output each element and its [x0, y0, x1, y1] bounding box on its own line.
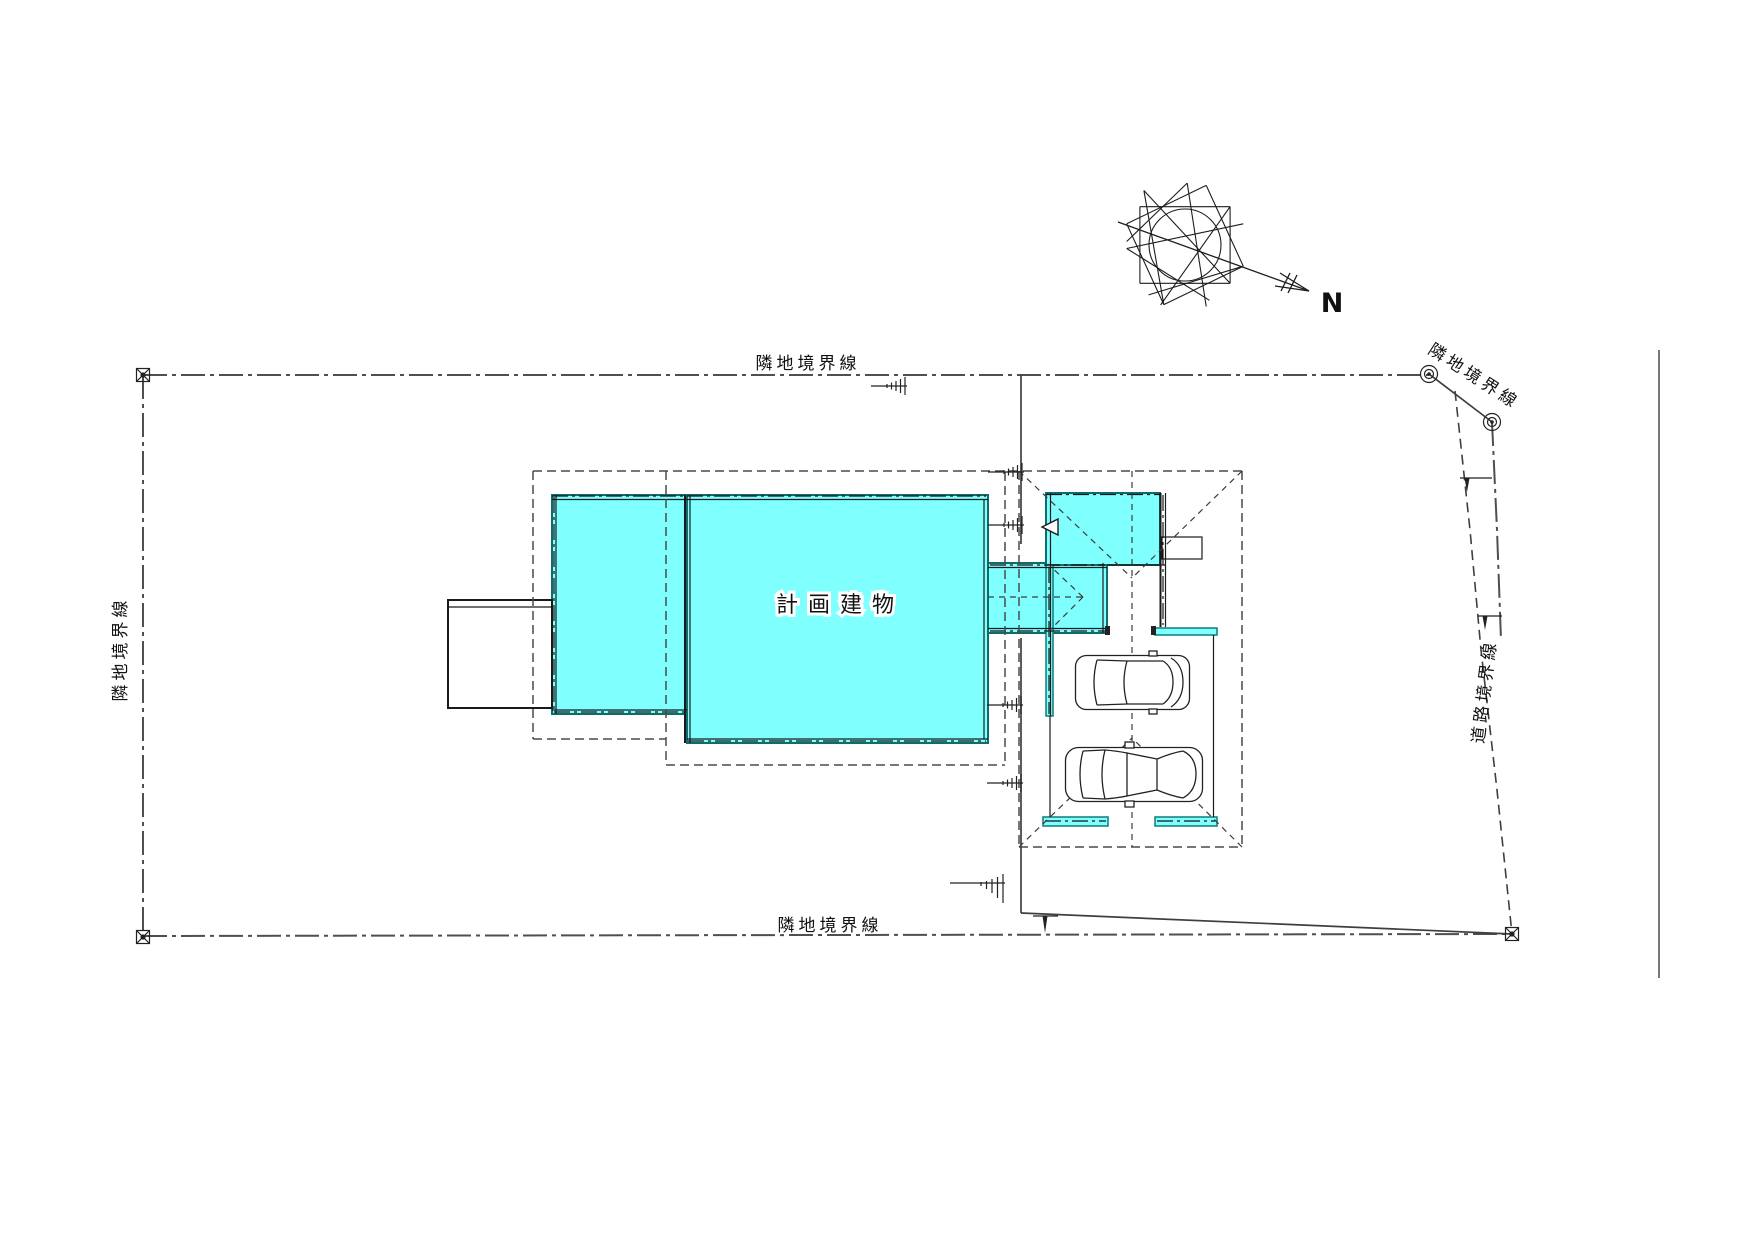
car-mirror	[1125, 801, 1134, 807]
wall-stub	[1105, 626, 1110, 635]
compass-star	[1127, 183, 1244, 306]
car-sedan	[1066, 742, 1203, 807]
car-mirror	[1149, 709, 1157, 714]
upper-right-boundary-label: 隣地境界線	[1424, 340, 1523, 414]
north-label: N	[1321, 288, 1344, 319]
north-arrow	[1118, 222, 1309, 293]
terrace	[448, 600, 552, 708]
road-side-chain-line	[1492, 422, 1501, 640]
car-windshield	[1127, 753, 1157, 796]
road-boundary-label: 道路境界線	[1469, 638, 1502, 745]
bottom-boundary-label: 隣地境界線	[778, 916, 883, 936]
carport-top-right-wall	[1155, 628, 1217, 635]
ground-level-mark	[987, 774, 1023, 792]
corner-marker	[137, 931, 150, 944]
labels: 隣地境界線 隣地境界線 隣地境界線 隣地境界線 道路境界線 計画建物 N	[111, 288, 1523, 936]
building-label: 計画建物	[776, 593, 904, 618]
car-mirror	[1125, 742, 1134, 748]
car-compact	[1076, 651, 1190, 714]
compass-rose	[1118, 183, 1309, 306]
wall-stub	[1151, 626, 1156, 635]
fence-mark	[1033, 916, 1058, 933]
pin-marker	[1421, 366, 1438, 383]
entry-landing	[1162, 537, 1202, 559]
building-main-block	[687, 495, 988, 743]
fence-mark	[1478, 616, 1502, 630]
building-right-wing	[1046, 493, 1160, 565]
lot-south-line	[1021, 913, 1512, 934]
top-boundary-label: 隣地境界線	[756, 354, 861, 374]
car-mirror	[1149, 651, 1157, 656]
site-plan-drawing: 隣地境界線 隣地境界線 隣地境界線 隣地境界線 道路境界線 計画建物 N	[0, 0, 1755, 1240]
site-plan-page: 隣地境界線 隣地境界線 隣地境界線 隣地境界線 道路境界線 計画建物 N	[0, 0, 1755, 1240]
ground-level-mark	[871, 377, 907, 395]
ground-level-mark	[950, 874, 1005, 903]
left-boundary-label: 隣地境界線	[111, 597, 131, 702]
